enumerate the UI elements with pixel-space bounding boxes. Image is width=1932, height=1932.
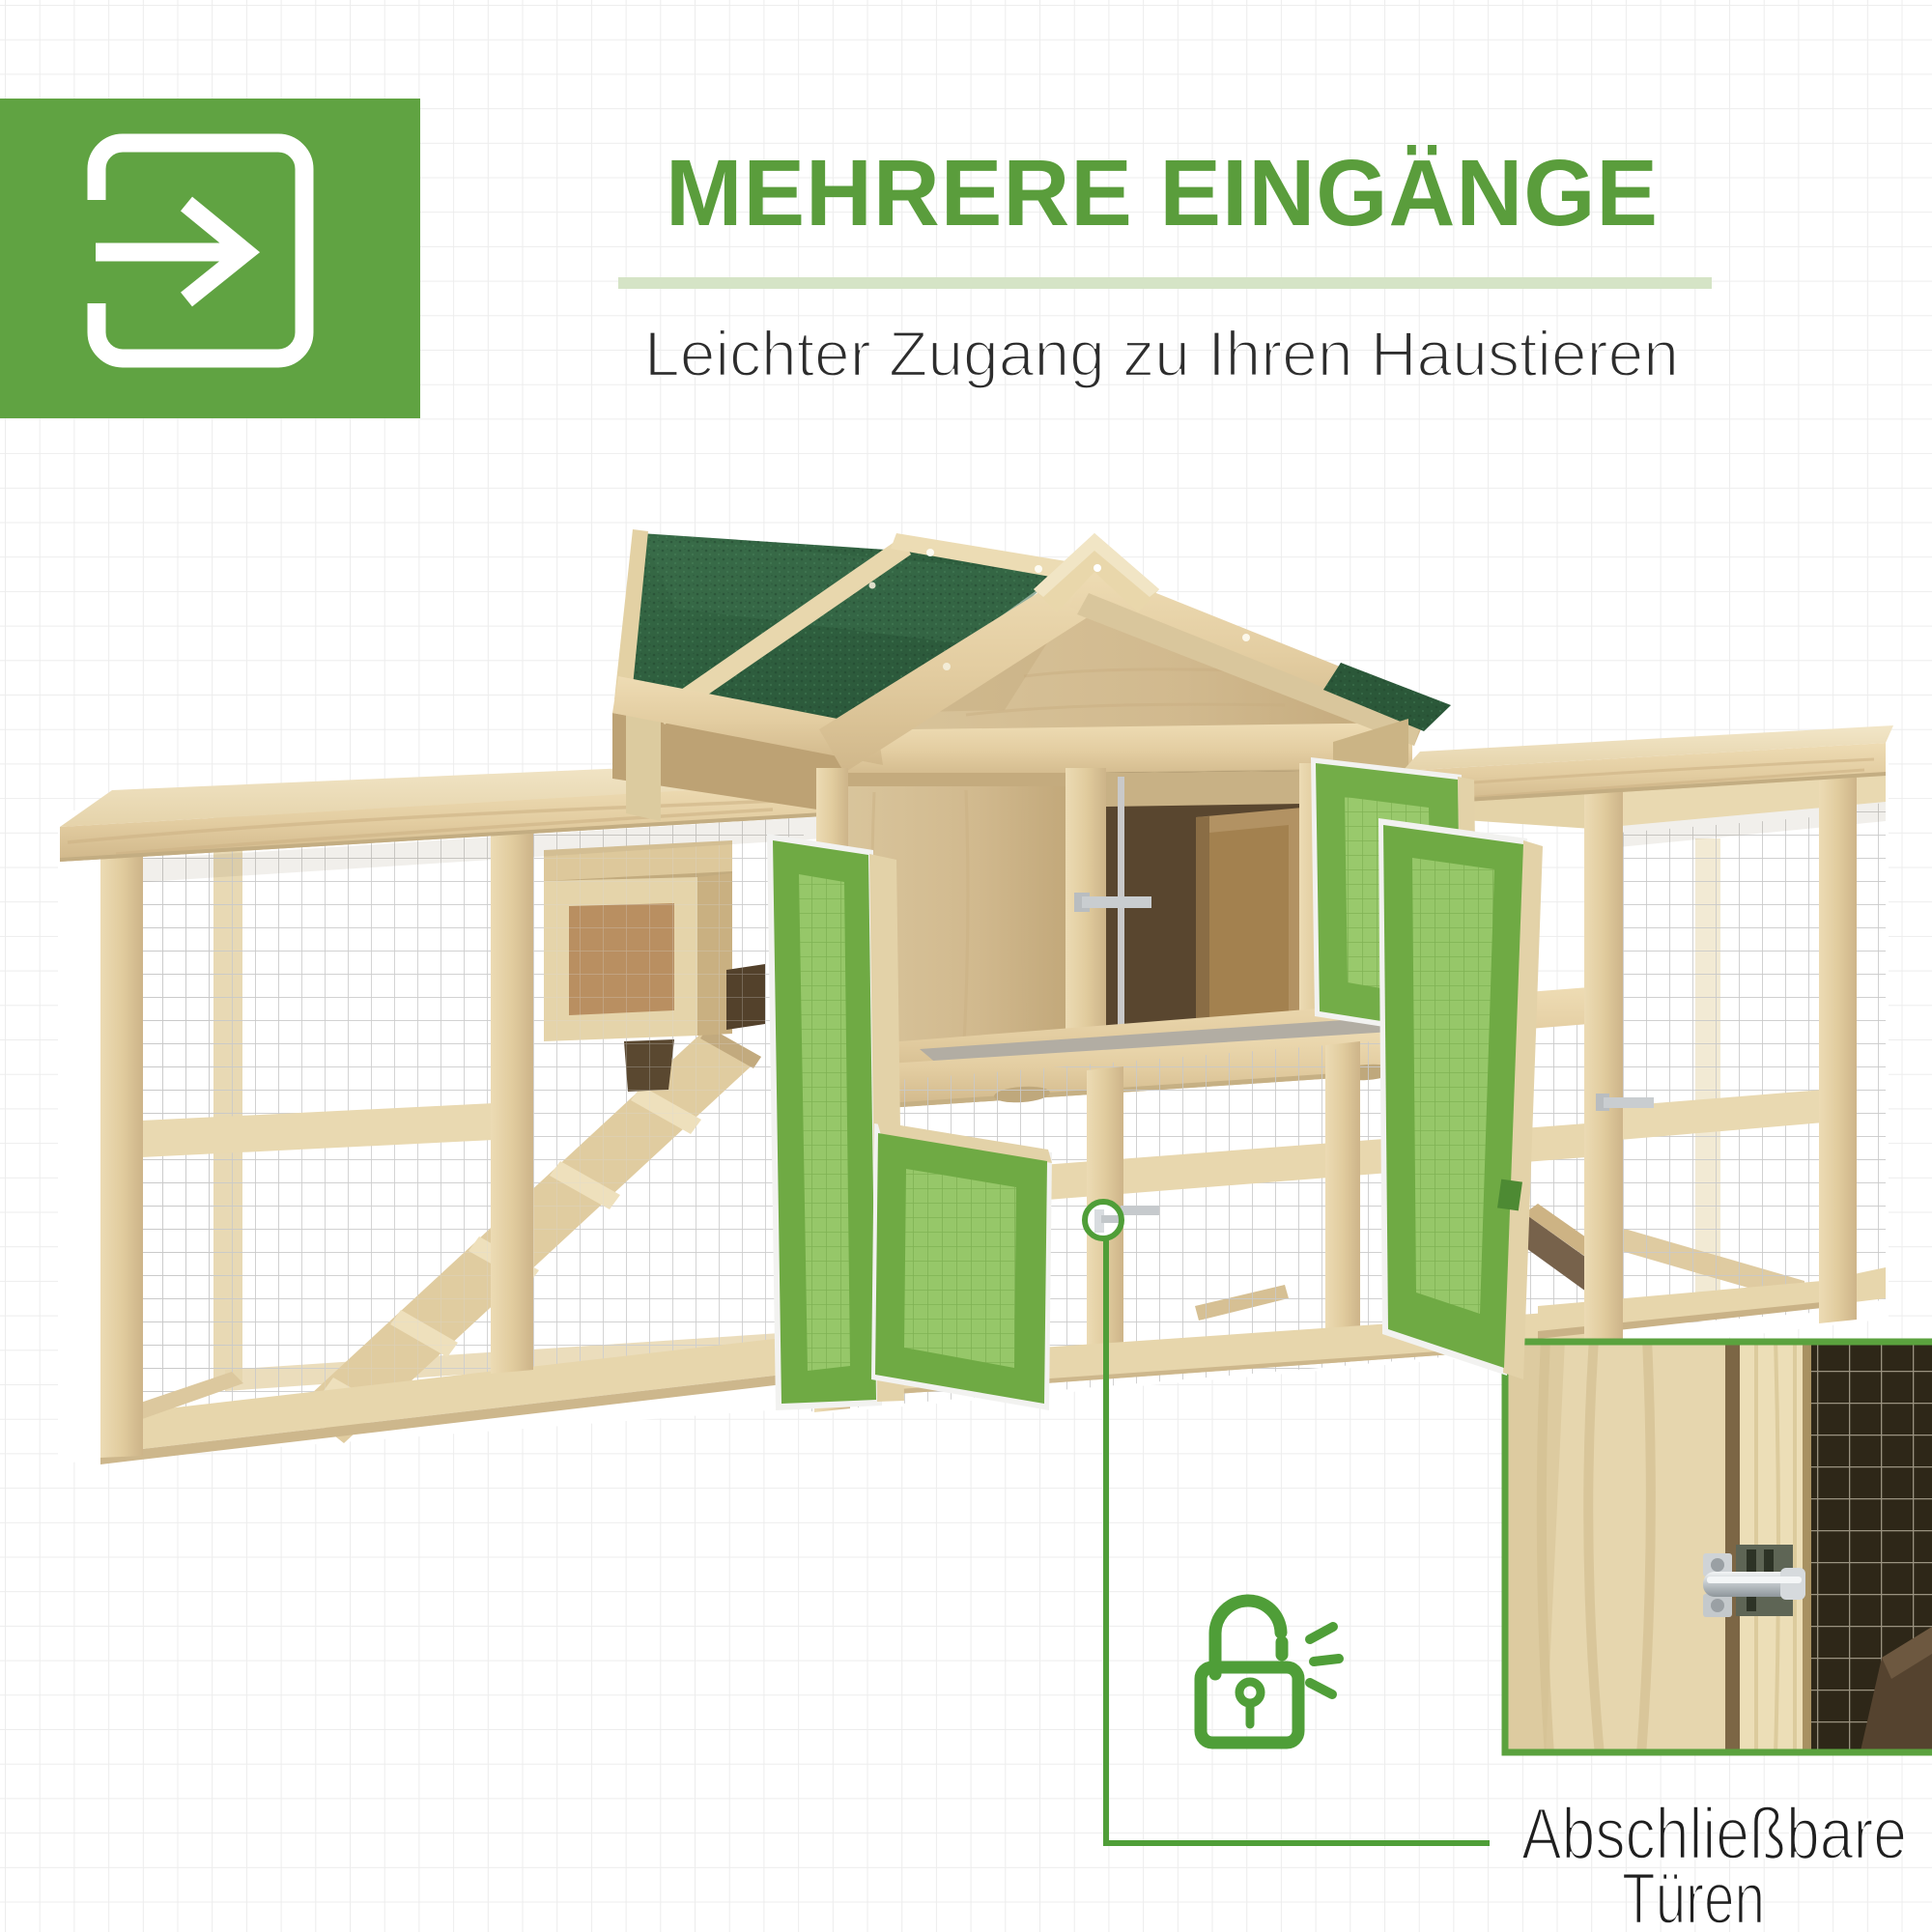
svg-text:MEHRERE EINGÄNGE: MEHRERE EINGÄNGE xyxy=(666,140,1659,245)
svg-text:Türen: Türen xyxy=(1622,1858,1765,1932)
svg-text:Leichter Zugang zu Ihren Haust: Leichter Zugang zu Ihren Haustieren xyxy=(644,318,1679,389)
